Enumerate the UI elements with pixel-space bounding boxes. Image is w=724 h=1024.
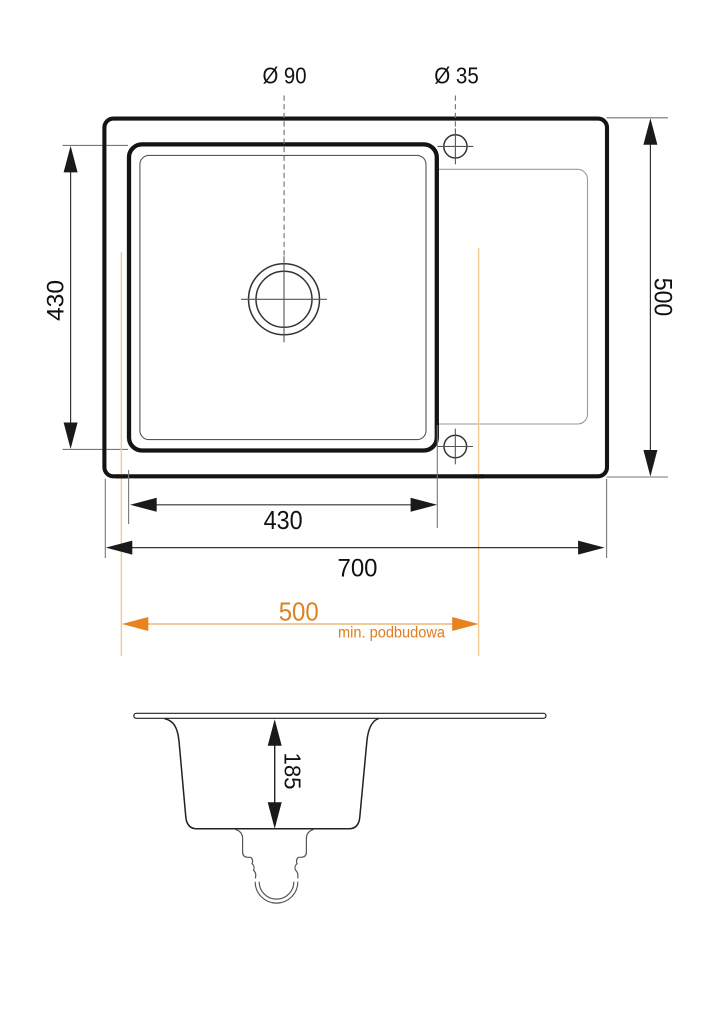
svg-text:Ø 90: Ø 90 bbox=[263, 62, 307, 88]
svg-text:500: 500 bbox=[649, 278, 677, 317]
svg-text:Ø 35: Ø 35 bbox=[434, 62, 479, 88]
svg-text:430: 430 bbox=[264, 507, 303, 535]
svg-text:min. podbudowa: min. podbudowa bbox=[338, 625, 445, 642]
svg-text:185: 185 bbox=[279, 753, 305, 790]
svg-text:700: 700 bbox=[338, 554, 378, 582]
svg-text:500: 500 bbox=[279, 598, 319, 626]
svg-text:430: 430 bbox=[42, 280, 69, 321]
